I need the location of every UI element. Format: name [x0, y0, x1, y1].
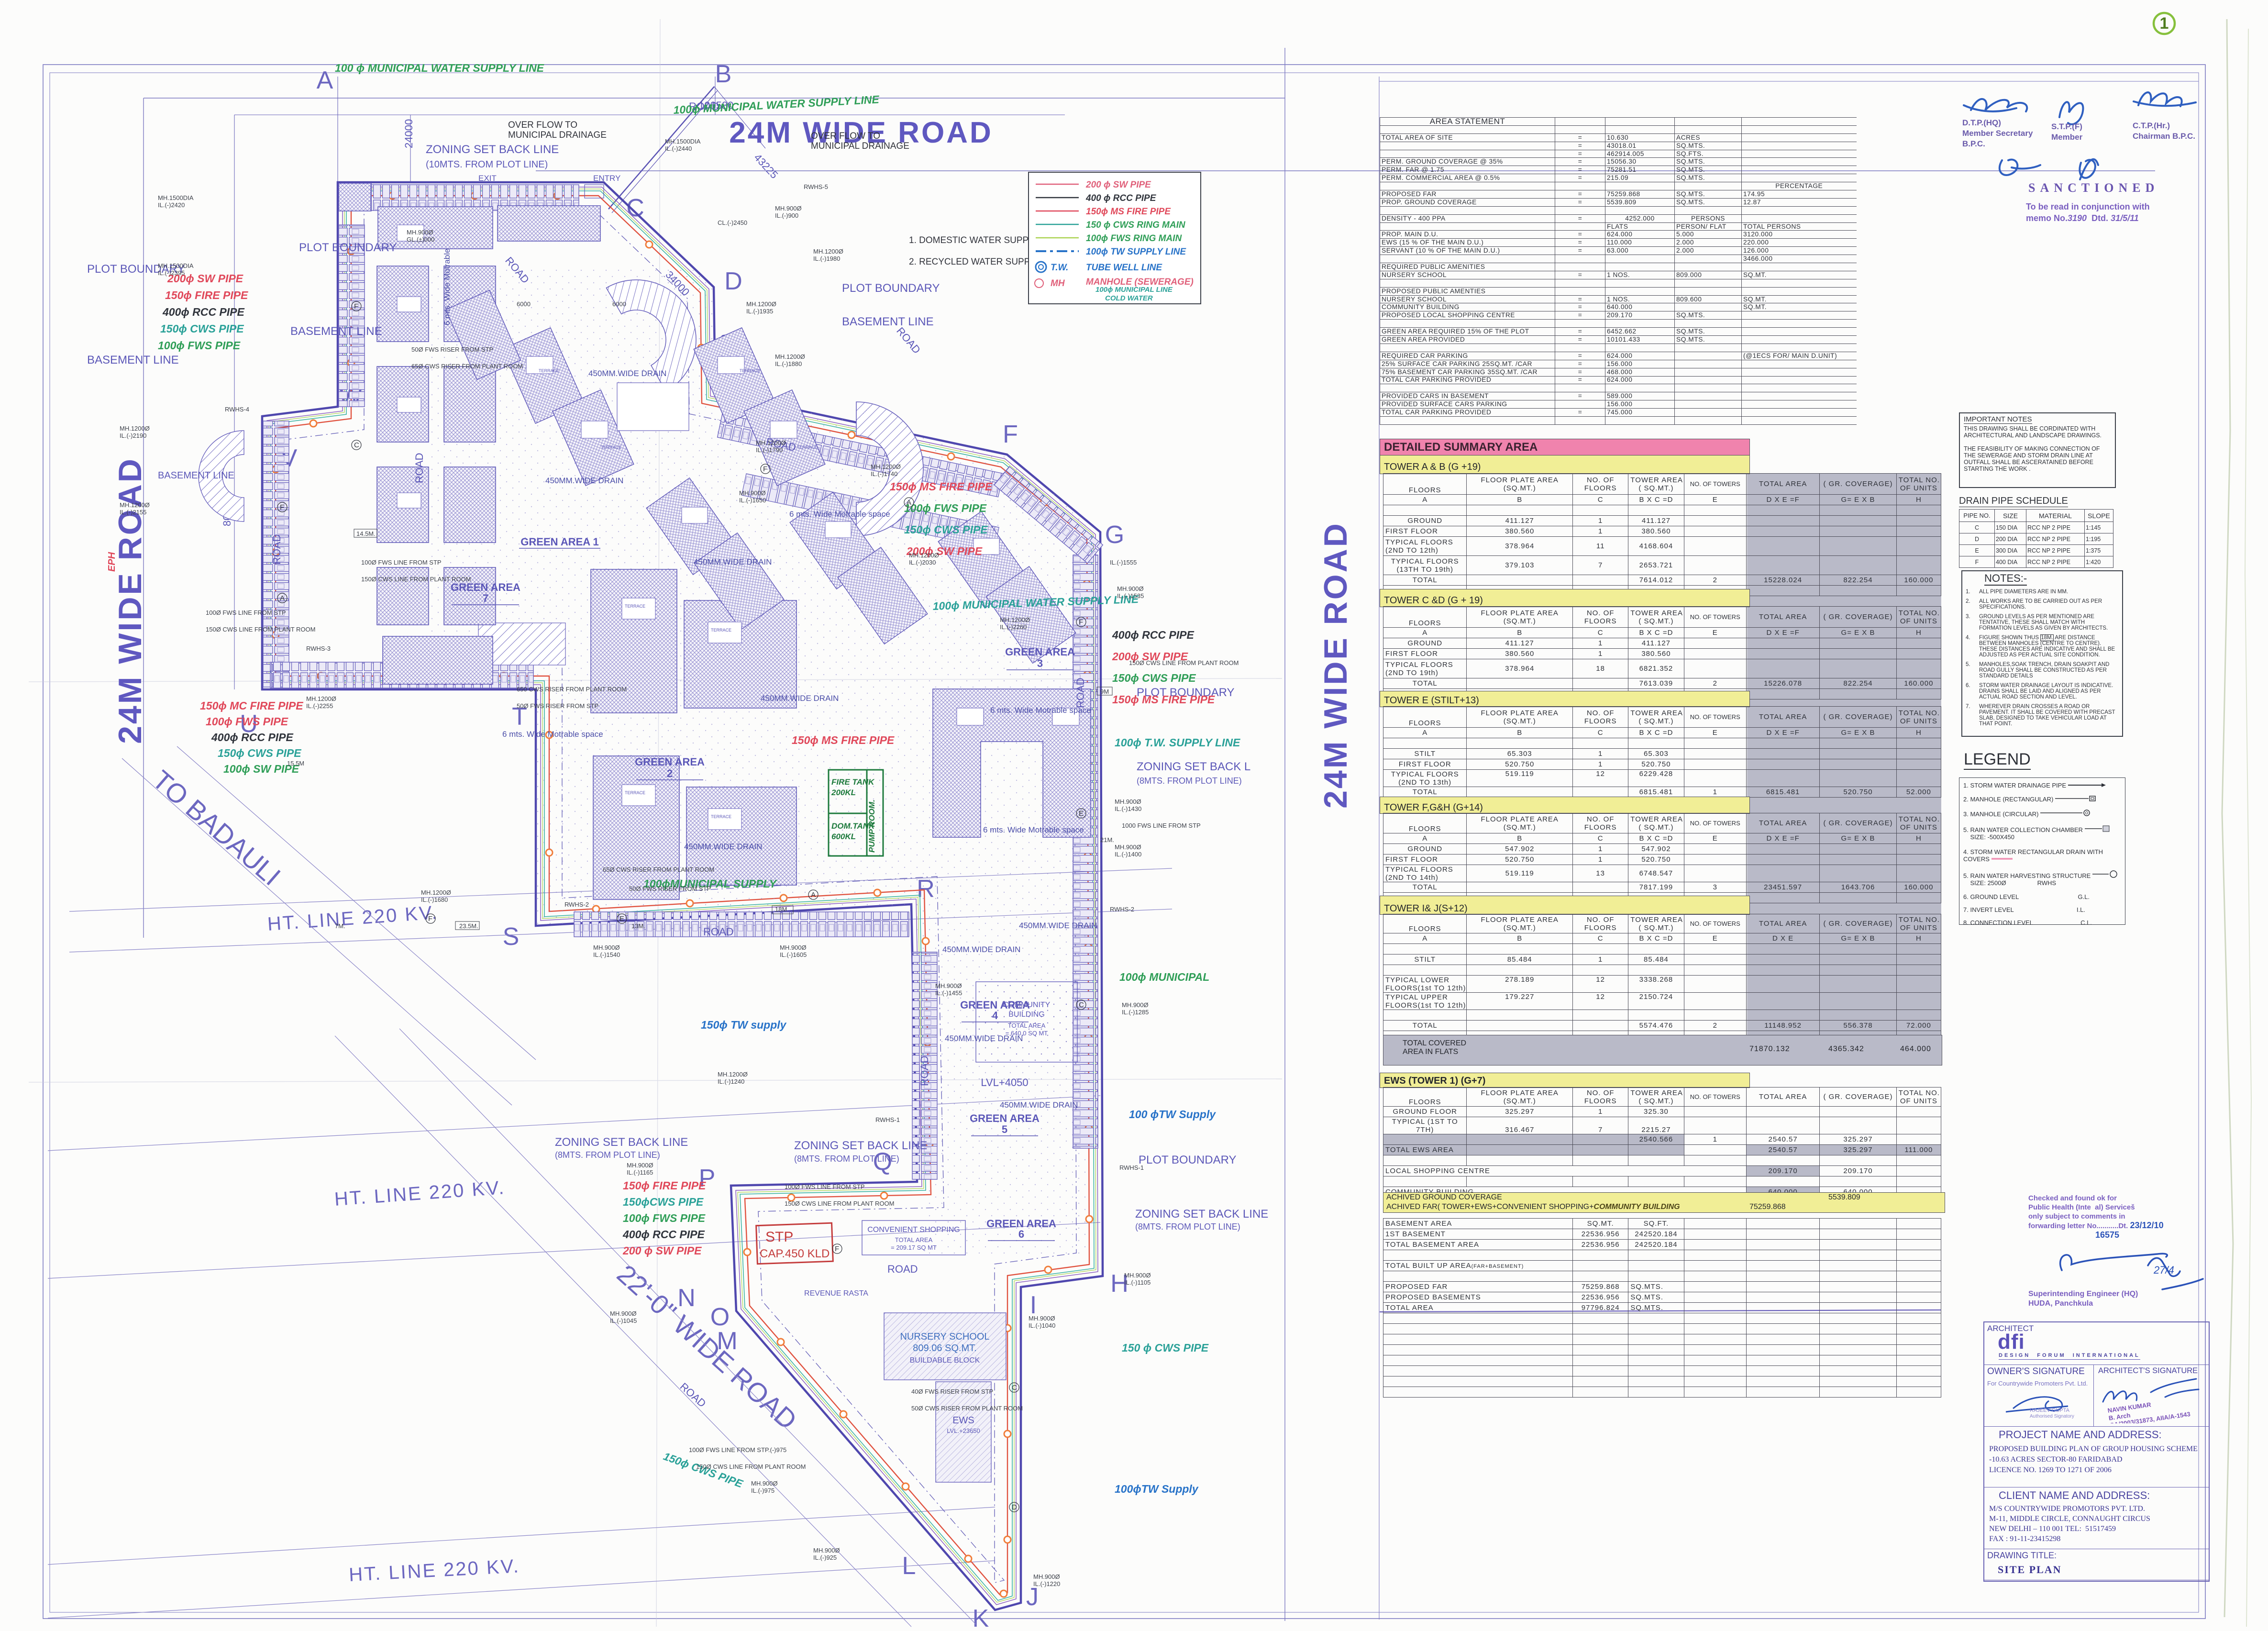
svg-text:IL.(-)1285: IL.(-)1285	[1122, 1009, 1149, 1016]
svg-text:IL.(-)1740: IL.(-)1740	[871, 470, 897, 477]
svg-text:MH.1200Ø: MH.1200Ø	[813, 248, 843, 255]
svg-text:MH.900Ø: MH.900Ø	[751, 1480, 778, 1487]
svg-text:IL.(-)900: IL.(-)900	[775, 212, 798, 219]
svg-text:400ϕ RCC PIPE: 400ϕ RCC PIPE	[211, 731, 293, 743]
svg-text:C: C	[1079, 1001, 1084, 1009]
svg-text:MH.900Ø: MH.900Ø	[610, 1310, 637, 1317]
svg-text:RWHS-2: RWHS-2	[564, 901, 589, 908]
svg-text:65Ø CWS RISER FROM PLANT ROOM: 65Ø CWS RISER FROM PLANT ROOM	[603, 866, 714, 873]
svg-text:ROAD: ROAD	[887, 1263, 918, 1275]
svg-text:100ϕ FWS PIPE: 100ϕ FWS PIPE	[158, 339, 241, 352]
svg-text:23.5M.: 23.5M.	[459, 922, 478, 930]
svg-text:ROAD: ROAD	[413, 453, 425, 483]
svg-text:100 ϕTW Supply: 100 ϕTW Supply	[1129, 1108, 1216, 1121]
svg-text:(8MTS. FROM PLOT LINE): (8MTS. FROM PLOT LINE)	[1135, 1222, 1240, 1232]
svg-text:6000: 6000	[612, 300, 626, 308]
svg-text:RWHS-5: RWHS-5	[804, 183, 828, 190]
svg-text:6 mts. Wide Motrable space: 6 mts. Wide Motrable space	[502, 730, 603, 739]
svg-text:T.W.: T.W.	[1051, 263, 1068, 273]
svg-text:IL.(-)1680: IL.(-)1680	[421, 896, 448, 903]
svg-text:IL.(-)1430: IL.(-)1430	[1115, 805, 1141, 812]
svg-text:F: F	[280, 503, 284, 511]
svg-text:7M.: 7M.	[335, 922, 345, 930]
svg-text:200KL: 200KL	[831, 788, 856, 797]
svg-text:MH.1500DIA: MH.1500DIA	[665, 138, 701, 145]
svg-text:TERRACE: TERRACE	[539, 368, 559, 373]
svg-text:IL.(-)1650: IL.(-)1650	[739, 497, 766, 504]
svg-text:IL.(-)1790: IL.(-)1790	[756, 446, 783, 454]
svg-text:MH.900Ø: MH.900Ø	[1115, 798, 1141, 805]
svg-text:200 ϕ SW PIPE: 200 ϕ SW PIPE	[622, 1244, 702, 1257]
svg-text:6 mts. Wide Motrable: 6 mts. Wide Motrable	[443, 248, 452, 325]
svg-text:IL.(-)1535: IL.(-)1535	[1117, 592, 1144, 599]
svg-text:IL.(-)2155: IL.(-)2155	[120, 509, 146, 516]
svg-text:MH.1200Ø: MH.1200Ø	[871, 463, 901, 470]
svg-text:GREEN AREA 1: GREEN AREA 1	[520, 536, 598, 548]
svg-text:F: F	[354, 302, 358, 311]
svg-text:GREEN AREA: GREEN AREA	[970, 1112, 1040, 1124]
svg-text:TOTAL AREA: TOTAL AREA	[1008, 1022, 1046, 1029]
svg-text:9M: 9M	[1100, 688, 1109, 695]
svg-text:EXIT: EXIT	[478, 174, 497, 183]
svg-text:3: 3	[1037, 657, 1043, 669]
svg-text:REVENUE RASTA: REVENUE RASTA	[804, 1289, 868, 1298]
svg-text:TERRACE: TERRACE	[797, 445, 818, 450]
svg-text:B: B	[715, 60, 732, 88]
svg-text:MH.900Ø: MH.900Ø	[407, 229, 433, 236]
svg-text:ROAD: ROAD	[1074, 677, 1086, 708]
svg-text:IL.(-)1045: IL.(-)1045	[610, 1317, 637, 1324]
svg-text:HT. LINE 220 KV.: HT. LINE 220 KV.	[334, 1177, 506, 1210]
svg-text:D: D	[724, 267, 742, 295]
svg-text:MH.1500DIA: MH.1500DIA	[158, 194, 194, 201]
svg-text:S: S	[503, 923, 520, 951]
svg-text:TO BADAULI: TO BADAULI	[147, 765, 287, 891]
svg-text:450MM.WIDE DRAIN: 450MM.WIDE DRAIN	[694, 557, 772, 566]
svg-text:MH.1200Ø: MH.1200Ø	[120, 501, 150, 509]
svg-text:IL.(-)1605: IL.(-)1605	[780, 951, 807, 958]
svg-text:CL.(-)2450: CL.(-)2450	[718, 219, 747, 226]
svg-text:IL.(-)1400: IL.(-)1400	[1115, 851, 1141, 858]
svg-text:600KL: 600KL	[831, 832, 856, 841]
svg-text:MH.1500DIA: MH.1500DIA	[158, 262, 194, 269]
svg-text:GREEN AREA: GREEN AREA	[635, 756, 705, 768]
svg-text:IL.(-)1980: IL.(-)1980	[813, 255, 840, 262]
svg-text:CONVENIENT SHOPPING: CONVENIENT SHOPPING	[867, 1226, 960, 1234]
svg-text:6000: 6000	[517, 300, 531, 308]
svg-text:450MM.WIDE DRAIN: 450MM.WIDE DRAIN	[1000, 1100, 1078, 1110]
svg-text:A: A	[280, 594, 285, 602]
svg-text:GREEN AREA: GREEN AREA	[1005, 646, 1075, 658]
svg-text:F: F	[1003, 421, 1018, 448]
svg-text:100Ø FWS LINE FROM STP: 100Ø FWS LINE FROM STP	[361, 559, 442, 566]
svg-text:MH.1200Ø: MH.1200Ø	[756, 439, 786, 446]
svg-text:MUNICIPAL DRAINAGE: MUNICIPAL DRAINAGE	[508, 130, 607, 140]
svg-text:TOTAL AREA: TOTAL AREA	[895, 1236, 933, 1243]
svg-text:400ϕ RCC PIPE: 400ϕ RCC PIPE	[1112, 629, 1194, 641]
svg-text:HT. LINE 220 KV.: HT. LINE 220 KV.	[348, 1555, 520, 1586]
svg-text:200 ϕ SW PIPE: 200 ϕ SW PIPE	[1085, 180, 1151, 190]
svg-text:TERRACE: TERRACE	[601, 445, 621, 450]
svg-text:F: F	[835, 1245, 839, 1253]
svg-text:CAP.450 KLD: CAP.450 KLD	[760, 1247, 830, 1260]
svg-text:IL.(-)925: IL.(-)925	[813, 1554, 837, 1561]
svg-text:PLOT BOUNDARY: PLOT BOUNDARY	[299, 241, 397, 254]
svg-text:ROAD: ROAD	[703, 926, 734, 938]
svg-text:450MM.WIDE DRAIN: 450MM.WIDE DRAIN	[945, 1034, 1023, 1043]
svg-text:MH.900Ø: MH.900Ø	[780, 944, 807, 951]
svg-text:150ϕ MS FIRE PIPE: 150ϕ MS FIRE PIPE	[890, 480, 993, 493]
svg-text:GL.(±)000: GL.(±)000	[407, 236, 434, 243]
svg-text:TERRACE: TERRACE	[625, 790, 645, 795]
svg-text:450MM.WIDE DRAIN: 450MM.WIDE DRAIN	[684, 842, 762, 851]
svg-text:15.5M: 15.5M	[287, 760, 304, 767]
svg-text:TUBE WELL LINE: TUBE WELL LINE	[1086, 263, 1162, 273]
svg-text:Authorised Signatory: Authorised Signatory	[2030, 1414, 2074, 1419]
svg-text:B.P.C.: B.P.C.	[1962, 139, 1985, 148]
svg-text:= 209.17 SQ MT: = 209.17 SQ MT	[891, 1244, 937, 1251]
svg-text:BASEMENT LINE: BASEMENT LINE	[842, 315, 934, 328]
svg-text:150ϕ CWS PIPE: 150ϕ CWS PIPE	[1112, 672, 1196, 684]
svg-text:450MM.WIDE DRAIN: 450MM.WIDE DRAIN	[588, 369, 666, 378]
svg-text:ROAD: ROAD	[271, 534, 283, 565]
svg-text:150ϕ CWS PIPE: 150ϕ CWS PIPE	[160, 322, 244, 335]
svg-text:450MM.WIDE DRAIN: 450MM.WIDE DRAIN	[545, 476, 623, 485]
svg-text:150Ø CWS LINE FROM PLANT ROOM: 150Ø CWS LINE FROM PLANT ROOM	[206, 626, 315, 633]
svg-text:E: E	[1079, 810, 1084, 818]
svg-text:ZONING SET BACK LINE: ZONING SET BACK LINE	[1135, 1208, 1268, 1220]
svg-text:(8MTS. FROM PLOT LINE): (8MTS. FROM PLOT LINE)	[555, 1150, 660, 1160]
svg-text:OVER FLOW TO: OVER FLOW TO	[508, 120, 577, 130]
svg-text:RWHS-1: RWHS-1	[875, 1116, 900, 1123]
svg-text:MUNICIPAL DRAINAGE: MUNICIPAL DRAINAGE	[811, 141, 909, 151]
svg-text:COLD WATER: COLD WATER	[1105, 294, 1153, 302]
svg-text:7: 7	[483, 592, 488, 604]
svg-text:150ϕ CWS PIPE: 150ϕ CWS PIPE	[904, 523, 988, 536]
svg-text:(8MTS. FROM PLOT LINE): (8MTS. FROM PLOT LINE)	[1137, 776, 1242, 786]
svg-text:TERRACE: TERRACE	[625, 604, 645, 609]
svg-text:IL.(-)1220: IL.(-)1220	[1033, 1580, 1060, 1587]
svg-text:IL.(-)2440: IL.(-)2440	[665, 145, 692, 152]
svg-text:809.06 SQ.MT.: 809.06 SQ.MT.	[913, 1343, 976, 1354]
svg-text:MH.1200Ø: MH.1200Ø	[909, 552, 939, 559]
svg-text:BASEMENT LINE: BASEMENT LINE	[158, 470, 234, 481]
svg-text:450MM.WIDE DRAIN: 450MM.WIDE DRAIN	[942, 945, 1020, 954]
svg-text:150Ø CWS LINE FROM PLANT ROOM: 150Ø CWS LINE FROM PLANT ROOM	[1129, 659, 1239, 666]
svg-text:40Ø FWS RISER FROM STP: 40Ø FWS RISER FROM STP	[911, 1388, 993, 1395]
svg-text:400ϕ RCC PIPE: 400ϕ RCC PIPE	[622, 1228, 705, 1241]
svg-text:450MM.WIDE DRAIN: 450MM.WIDE DRAIN	[761, 694, 839, 703]
svg-text:IL.(-)2420: IL.(-)2420	[158, 201, 185, 209]
svg-text:100ϕTW Supply: 100ϕTW Supply	[1115, 1483, 1199, 1495]
svg-text:150ϕCWS PIPE: 150ϕCWS PIPE	[623, 1196, 704, 1208]
svg-text:ROAD: ROAD	[918, 1055, 930, 1086]
svg-text:OVER FLOW TO: OVER FLOW TO	[811, 131, 880, 141]
svg-text:IL.(-)2030: IL.(-)2030	[909, 559, 936, 566]
svg-text:IL.(-)1105: IL.(-)1105	[1124, 1279, 1151, 1286]
svg-text:IL.(-)1240: IL.(-)1240	[718, 1078, 744, 1085]
svg-text:A: A	[907, 499, 911, 507]
svg-text:MH.1200Ø: MH.1200Ø	[421, 889, 451, 896]
svg-text:A: A	[317, 67, 333, 94]
svg-text:GREEN AREA: GREEN AREA	[451, 581, 520, 593]
svg-text:EWS: EWS	[952, 1415, 974, 1426]
svg-text:100ϕ TW SUPPLY LINE: 100ϕ TW SUPPLY LINE	[1086, 247, 1186, 257]
svg-text:IL.(-)1040: IL.(-)1040	[1029, 1322, 1055, 1329]
svg-text:MH.1200Ø: MH.1200Ø	[718, 1071, 748, 1078]
svg-text:6 mts. Wide Motrable space: 6 mts. Wide Motrable space	[789, 510, 890, 519]
svg-text:50Ø FWS RISER FROM STP: 50Ø FWS RISER FROM STP	[411, 346, 493, 353]
svg-text:IL.(-)1935: IL.(-)1935	[746, 308, 773, 315]
svg-text:G: G	[1105, 521, 1124, 549]
svg-text:MH: MH	[1051, 278, 1065, 288]
svg-text:1000 FWS LINE FROM STP: 1000 FWS LINE FROM STP	[1122, 822, 1201, 829]
svg-text:C: C	[1012, 1384, 1017, 1392]
svg-text:RWHS-1: RWHS-1	[1119, 1164, 1144, 1171]
svg-text:43225: 43225	[752, 151, 780, 181]
svg-text:FIRE TANK: FIRE TANK	[831, 777, 875, 787]
svg-text:MH.1200Ø: MH.1200Ø	[120, 425, 150, 432]
svg-text:150ϕ FIRE PIPE: 150ϕ FIRE PIPE	[623, 1179, 706, 1192]
svg-text:150ϕ MS FIRE PIPE: 150ϕ MS FIRE PIPE	[1086, 207, 1171, 217]
svg-text:RWHS-3: RWHS-3	[306, 645, 331, 652]
svg-text:F: F	[428, 915, 432, 923]
svg-text:BASEMENT LINE: BASEMENT LINE	[290, 325, 382, 338]
svg-text:IL.(-)1880: IL.(-)1880	[775, 360, 802, 367]
svg-text:100ϕ FWS PIPE: 100ϕ FWS PIPE	[904, 502, 987, 514]
svg-text:A: A	[811, 891, 816, 899]
svg-text:IL.(-)1540: IL.(-)1540	[593, 951, 620, 958]
svg-text:BUILDABLE BLOCK: BUILDABLE BLOCK	[910, 1356, 980, 1365]
svg-text:F: F	[763, 465, 767, 473]
svg-text:IL.(-)2190: IL.(-)2190	[120, 432, 146, 439]
svg-text:PLOT BOUNDARY: PLOT BOUNDARY	[1139, 1154, 1237, 1166]
svg-text:150ϕ MS FIRE PIPE: 150ϕ MS FIRE PIPE	[1112, 693, 1215, 706]
svg-text:IL.(-)2395: IL.(-)2395	[158, 269, 185, 277]
svg-text:MH.900Ø: MH.900Ø	[627, 1162, 653, 1169]
svg-text:K: K	[973, 1605, 989, 1631]
svg-text:TERRACE: TERRACE	[740, 368, 760, 373]
svg-text:150ϕ MS FIRE PIPE: 150ϕ MS FIRE PIPE	[792, 734, 895, 746]
svg-text:100ϕ MUNICIPAL WATER SUPPLY LI: 100ϕ MUNICIPAL WATER SUPPLY LINE	[673, 93, 880, 116]
svg-text:14.5M.: 14.5M.	[356, 530, 376, 537]
svg-text:100 ϕ MUNICIPAL WATER SUPPLY L: 100 ϕ MUNICIPAL WATER SUPPLY LINE	[335, 62, 544, 74]
svg-text:6: 6	[1018, 1228, 1024, 1240]
svg-text:PLOT BOUNDARY: PLOT BOUNDARY	[842, 282, 940, 295]
svg-text:MH.1200Ø: MH.1200Ø	[1000, 616, 1030, 623]
svg-text:NURSERY SCHOOL: NURSERY SCHOOL	[900, 1331, 989, 1342]
svg-text:MH.900Ø: MH.900Ø	[1122, 1001, 1149, 1009]
svg-text:Member: Member	[2051, 133, 2083, 142]
svg-text:ROAD: ROAD	[894, 325, 923, 356]
svg-text:MH.1200Ø: MH.1200Ø	[775, 353, 805, 360]
svg-text:150ϕ TW supply: 150ϕ TW supply	[701, 1019, 787, 1031]
svg-text:65Ø CWS RISER FROM PLANT ROOM: 65Ø CWS RISER FROM PLANT ROOM	[411, 363, 523, 370]
svg-text:RWHS-4: RWHS-4	[225, 406, 249, 413]
svg-text:LVL.+23650: LVL.+23650	[947, 1427, 980, 1434]
svg-text:STP: STP	[765, 1229, 793, 1245]
svg-text:150ϕ MC FIRE PIPE: 150ϕ MC FIRE PIPE	[200, 699, 303, 712]
svg-text:HT. LINE 220 KV.: HT. LINE 220 KV.	[267, 902, 439, 935]
svg-text:50Ø CWS RISER FROM PLANT ROOM: 50Ø CWS RISER FROM PLANT ROOM	[911, 1405, 1023, 1412]
svg-text:TERRACE: TERRACE	[711, 628, 731, 632]
svg-text:Member Secretary: Member Secretary	[1962, 129, 2033, 138]
svg-text:4: 4	[992, 1010, 998, 1021]
svg-text:13M.: 13M.	[631, 922, 645, 930]
svg-text:100ϕ FWS PIPE: 100ϕ FWS PIPE	[206, 715, 288, 728]
svg-text:MH.900Ø: MH.900Ø	[1117, 585, 1144, 592]
svg-text:D.T.P.(HQ): D.T.P.(HQ)	[1962, 118, 2001, 127]
svg-text:2: 2	[667, 767, 673, 779]
svg-text:TERRACE: TERRACE	[711, 814, 731, 819]
svg-text:RAJEEV GUPTA: RAJEEV GUPTA	[2030, 1408, 2070, 1413]
svg-text:100ϕ MUNICIPAL: 100ϕ MUNICIPAL	[1119, 971, 1209, 983]
svg-text:MH.900Ø: MH.900Ø	[935, 982, 962, 989]
svg-text:MH.900Ø: MH.900Ø	[739, 489, 766, 497]
svg-text:150Ø CWS LINE FROM PLANT ROOM: 150Ø CWS LINE FROM PLANT ROOM	[361, 576, 471, 583]
svg-text:21M.: 21M.	[1100, 836, 1114, 843]
svg-text:18M: 18M	[775, 906, 787, 913]
svg-text:24M WIDE ROAD: 24M WIDE ROAD	[1317, 521, 1354, 809]
svg-text:C: C	[354, 441, 359, 449]
svg-text:150ϕ FIRE PIPE: 150ϕ FIRE PIPE	[165, 289, 248, 301]
svg-text:(8MTS. FROM PLOT LINE): (8MTS. FROM PLOT LINE)	[794, 1154, 899, 1164]
svg-text:MH.900Ø: MH.900Ø	[1124, 1272, 1151, 1279]
svg-text:150 ϕ CWS RING MAIN: 150 ϕ CWS RING MAIN	[1086, 220, 1186, 230]
svg-text:Chairman B.P.C.: Chairman B.P.C.	[2133, 132, 2195, 141]
svg-text:ZONING SET BACK LINE: ZONING SET BACK LINE	[426, 143, 559, 156]
svg-text:100Ø FWS LINE FROM STP.(-)975: 100Ø FWS LINE FROM STP.(-)975	[689, 1446, 786, 1453]
svg-text:50Ø FWS RISER FROM STP: 50Ø FWS RISER FROM STP	[517, 702, 598, 710]
svg-text:24000: 24000	[403, 119, 415, 148]
svg-text:LVL+4050: LVL+4050	[981, 1076, 1028, 1088]
svg-text:MH.900Ø: MH.900Ø	[1033, 1573, 1060, 1580]
svg-text:MH.1200Ø: MH.1200Ø	[746, 300, 776, 308]
svg-text:IL.(-)975: IL.(-)975	[751, 1487, 774, 1494]
svg-text:MH.900Ø: MH.900Ø	[775, 205, 802, 212]
svg-text:6 mts. Wide Motrable space: 6 mts. Wide Motrable space	[990, 706, 1091, 715]
svg-text:400 ϕ RCC PIPE: 400 ϕ RCC PIPE	[1085, 193, 1157, 203]
svg-text:6 mts. Wide Motrable space: 6 mts. Wide Motrable space	[983, 825, 1084, 834]
svg-text:ZONING SET BACK LINE: ZONING SET BACK LINE	[794, 1139, 927, 1152]
svg-text:MH.900Ø: MH.900Ø	[813, 1547, 840, 1554]
svg-text:IL.(-)2255: IL.(-)2255	[306, 702, 333, 710]
svg-text:450MM.WIDE DRAIN: 450MM.WIDE DRAIN	[1019, 921, 1097, 930]
svg-text:100ϕ FWS RING MAIN: 100ϕ FWS RING MAIN	[1086, 233, 1182, 244]
svg-text:F: F	[1079, 618, 1083, 626]
svg-text:PUMP ROOM.: PUMP ROOM.	[867, 799, 876, 853]
svg-text:100ϕ FWS PIPE: 100ϕ FWS PIPE	[623, 1212, 706, 1224]
svg-text:400ϕ RCC PIPE: 400ϕ RCC PIPE	[162, 306, 244, 318]
svg-text:(10MTS. FROM PLOT LINE): (10MTS. FROM PLOT LINE)	[426, 159, 548, 170]
svg-text:MH.1200Ø: MH.1200Ø	[306, 695, 336, 702]
svg-text:MH.900Ø: MH.900Ø	[1115, 843, 1141, 851]
svg-text:MH.900Ø: MH.900Ø	[1029, 1315, 1055, 1322]
svg-text:C.T.P.(Hr.): C.T.P.(Hr.)	[2133, 121, 2170, 130]
svg-text:IL.(-)1455: IL.(-)1455	[935, 989, 962, 997]
svg-text:ZONING SET BACK LINE: ZONING SET BACK LINE	[555, 1136, 688, 1149]
svg-text:EPH: EPH	[107, 552, 117, 572]
svg-text:1: 1	[2160, 14, 2169, 33]
svg-text:5: 5	[1002, 1123, 1007, 1135]
svg-text:ENTRY: ENTRY	[593, 174, 620, 183]
svg-text:650 CWS RISER FROM PLANT ROOM: 650 CWS RISER FROM PLANT ROOM	[517, 686, 627, 693]
svg-text:E: E	[620, 915, 624, 923]
svg-text:150 ϕ CWS PIPE: 150 ϕ CWS PIPE	[1122, 1342, 1209, 1354]
svg-text:BUILDING: BUILDING	[1008, 1010, 1045, 1019]
svg-text:100ϕ T.W. SUPPLY LINE: 100ϕ T.W. SUPPLY LINE	[1115, 736, 1240, 749]
svg-text:IL.(-)2260: IL.(-)2260	[1000, 623, 1027, 631]
svg-text:IL.(-)1165: IL.(-)1165	[627, 1169, 653, 1176]
svg-text:100Ø FWS LINE FROM STP: 100Ø FWS LINE FROM STP	[785, 1183, 865, 1190]
svg-text:150ϕ CWS PIPE: 150ϕ CWS PIPE	[218, 747, 301, 759]
svg-text:50Ø FWS RISER FROM STP: 50Ø FWS RISER FROM STP	[629, 885, 711, 892]
svg-text:S.T.P.(F): S.T.P.(F)	[2051, 122, 2082, 131]
svg-text:150Ø CWS LINE FROM PLANT ROOM: 150Ø CWS LINE FROM PLANT ROOM	[696, 1463, 806, 1470]
svg-text:MH.900Ø: MH.900Ø	[593, 944, 620, 951]
svg-text:100Ø FWS LINE FROM STP: 100Ø FWS LINE FROM STP	[206, 609, 286, 616]
svg-text:27/4: 27/4	[2153, 1264, 2174, 1276]
svg-text:RWHS-2: RWHS-2	[1110, 906, 1134, 913]
svg-text:IL.(-)1555: IL.(-)1555	[1110, 559, 1137, 566]
svg-text:100ϕ MUNICIPAL LINE: 100ϕ MUNICIPAL LINE	[1095, 286, 1173, 294]
svg-text:D: D	[1012, 1503, 1017, 1511]
svg-text:O: O	[710, 1303, 730, 1331]
svg-text:24M WIDE ROAD: 24M WIDE ROAD	[112, 457, 148, 744]
svg-text:BASEMENT LINE: BASEMENT LINE	[87, 354, 179, 366]
svg-text:150Ø CWS LINE FROM PLANT ROOM: 150Ø CWS LINE FROM PLANT ROOM	[785, 1200, 894, 1207]
svg-text:ZONING SET BACK L: ZONING SET BACK L	[1137, 760, 1250, 773]
svg-text:ROAD: ROAD	[678, 1380, 708, 1409]
